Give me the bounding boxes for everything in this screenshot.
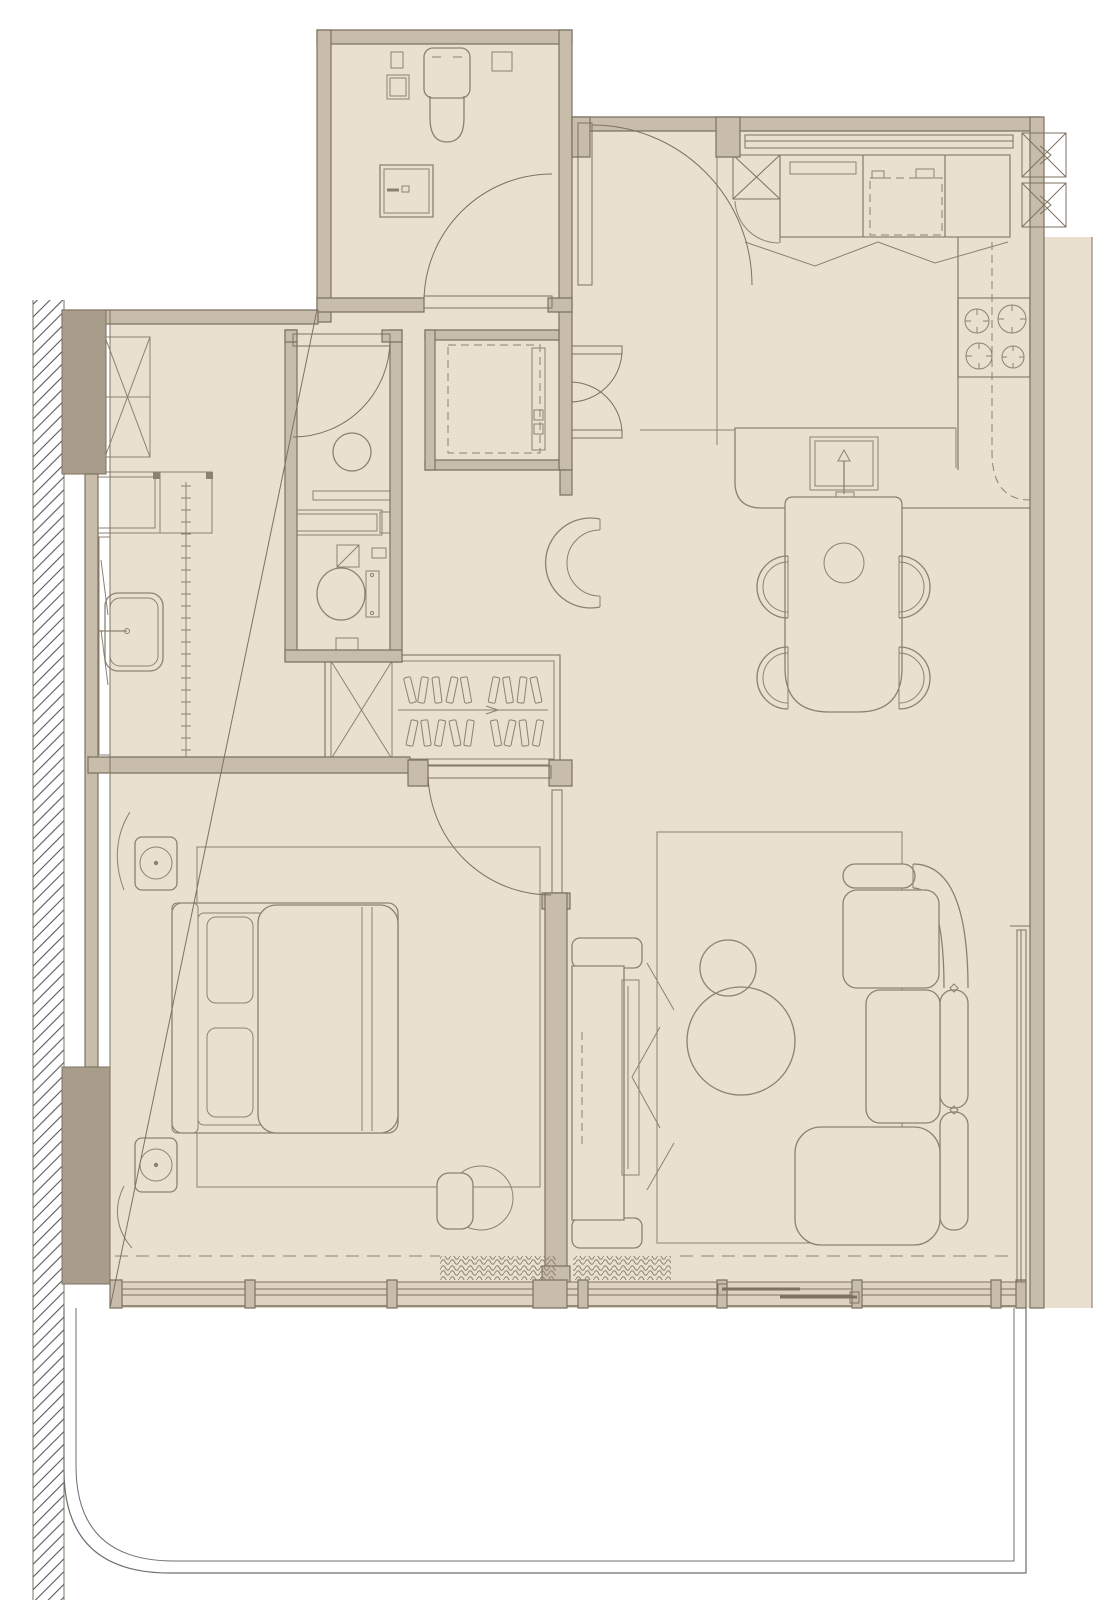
floor-plan-page [0,0,1108,1600]
balcony [64,1308,1026,1573]
floor-plan-svg [0,0,1108,1600]
duvet-icon [258,905,398,1133]
balcony-railing-inner [76,1308,1014,1561]
curtain-icon [440,1256,556,1280]
neighbor-terrace-strip [1044,237,1092,1308]
hatched-party-wall [33,300,64,1600]
curtain-icon [573,1256,671,1280]
folding-screen-track [179,482,191,758]
stool-icon [437,1173,473,1229]
structural-column [62,310,106,474]
dining-table-icon [785,497,902,712]
bed-icon [172,903,398,1133]
balcony-railing [64,1308,1026,1573]
structural-column [62,1067,110,1284]
